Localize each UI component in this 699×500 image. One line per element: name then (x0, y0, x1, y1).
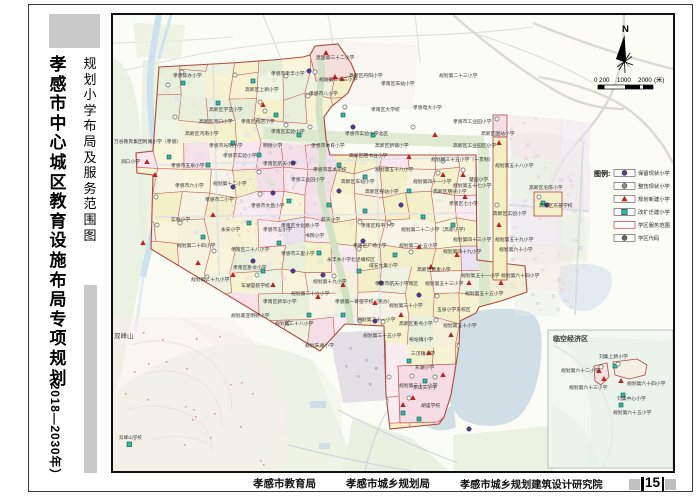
svg-text:孝南区卧龙小学: 孝南区卧龙小学 (233, 264, 267, 271)
svg-text:高新区重点小学: 高新区重点小学 (399, 320, 433, 327)
svg-text:孝感市玉泉小学: 孝感市玉泉小学 (171, 162, 205, 169)
svg-text:孝感市五小学: 孝感市五小学 (263, 226, 292, 233)
svg-text:规划第二十八小学: 规划第二十八小学 (275, 320, 314, 327)
svg-text:学区服务范围: 学区服务范围 (638, 221, 670, 229)
svg-text:孝南区和平小学: 孝南区和平小学 (361, 222, 395, 229)
svg-text:规划第二十三小学: 规划第二十三小学 (439, 72, 478, 79)
svg-text:高新区车站小学: 高新区车站小学 (341, 178, 375, 185)
svg-text:规划第二十二小学（高新小学）: 规划第二十二小学（高新小学） (401, 226, 468, 233)
svg-text:孝感市文昌小学: 孝感市文昌小学 (251, 202, 285, 209)
svg-text:孝感市实验小学北区: 孝感市实验小学北区 (345, 130, 388, 137)
svg-text:孝南区二十八小学: 孝南区二十八小学 (231, 246, 270, 253)
svg-text:规划第六十三小学: 规划第六十三小学 (569, 384, 608, 391)
svg-text:学区代码: 学区代码 (638, 234, 659, 242)
svg-text:咸安九集小学: 咸安九集小学 (369, 262, 398, 269)
svg-text:规划第五十七小学: 规划第五十七小学 (453, 182, 492, 189)
svg-text:规划第三十小学: 规划第三十小学 (389, 302, 423, 309)
svg-text:孝南区广场小学: 孝南区广场小学 (353, 242, 387, 249)
svg-text:高新区丹阳小学: 高新区丹阳小学 (349, 72, 383, 79)
svg-text:高新区上新小学: 高新区上新小学 (245, 86, 279, 93)
svg-text:孝感第一寄宿学校（民办）: 孝感第一寄宿学校（民办） (335, 298, 393, 305)
svg-text:图例:: 图例: (594, 169, 610, 178)
svg-text:明德小学: 明德小学 (263, 142, 282, 149)
svg-text:书院小学: 书院小学 (305, 232, 324, 239)
svg-text:孝南区航天小学: 孝南区航天小学 (263, 160, 297, 167)
svg-text:高新区朋兴小学: 高新区朋兴小学 (433, 188, 467, 195)
svg-text:孝南区车站小学: 孝南区车站小学 (381, 80, 415, 87)
svg-text:2000: 2000 (638, 77, 652, 84)
svg-text:规划第六十四小学: 规划第六十四小学 (501, 272, 540, 279)
svg-text:万谷教育集团附属小学（孝感）: 万谷教育集团附属小学（孝感） (114, 138, 181, 145)
svg-text:高新区河南小学: 高新区河南小学 (185, 130, 219, 137)
svg-text:实验小学: 实验小学 (171, 216, 190, 223)
svg-text:规划第二十六小学: 规划第二十六小学 (291, 290, 330, 297)
svg-text:规划第三十五小学: 规划第三十五小学 (363, 332, 402, 339)
svg-text:航天小学: 航天小学 (321, 216, 340, 223)
svg-text:孝南区杨店小学: 孝南区杨店小学 (241, 118, 275, 125)
svg-text:规划第五十一小学: 规划第五十一小学 (461, 272, 500, 279)
svg-text:规划第五十八小学: 规划第五十八小学 (375, 166, 414, 173)
svg-text:双峰山: 双峰山 (114, 331, 134, 340)
svg-text:高新区晒书台小学: 高新区晒书台小学 (349, 152, 388, 159)
svg-text:高新区实验小学: 高新区实验小学 (493, 210, 527, 217)
svg-text:孝感市二小学: 孝感市二小学 (205, 196, 234, 203)
svg-text:孝感市艺术学校: 孝感市艺术学校 (313, 166, 347, 173)
svg-text:三汊镇小学: 三汊镇小学 (411, 350, 435, 357)
svg-text:涧口小学: 涧口小学 (121, 158, 140, 165)
svg-text:规划新建小学: 规划新建小学 (638, 195, 670, 203)
svg-text:孝感市禾丰小学: 孝感市禾丰小学 (271, 70, 305, 77)
svg-text:规划第二十五小学: 规划第二十五小学 (399, 242, 438, 249)
svg-text:规划第三十五小学（一贯制）: 规划第三十五小学（一贯制） (431, 156, 493, 163)
svg-text:规划第五十九小学: 规划第五十九小学 (495, 236, 534, 243)
svg-text:孝感市六小学: 孝感市六小学 (175, 182, 204, 189)
svg-text:孝感市体育小学: 孝感市体育小学 (311, 142, 345, 149)
svg-text:永安小学: 永安小学 (221, 226, 240, 233)
svg-text:孝感市光明小学: 孝感市光明小学 (209, 142, 243, 149)
svg-text:整饬现状小学: 整饬现状小学 (638, 182, 670, 190)
svg-text:孝感市三里小学: 孝感市三里小学 (281, 250, 315, 257)
svg-text:保留现状小学: 保留现状小学 (638, 169, 670, 177)
svg-text:高新区黄麦小学: 高新区黄麦小学 (417, 266, 451, 273)
svg-text:楚园小学: 楚园小学 (469, 176, 488, 183)
svg-text:孝南区实验小学: 孝南区实验小学 (271, 128, 305, 135)
svg-text:1000: 1000 (617, 77, 631, 84)
svg-text:规划第二十一小学: 规划第二十一小学 (357, 316, 396, 323)
svg-text:孝感市航天小学南区: 孝感市航天小学南区 (375, 280, 418, 287)
svg-text:孝感市实验小学: 孝感市实验小学 (223, 152, 257, 159)
svg-text:高新区祝站小学: 高新区祝站小学 (365, 188, 399, 195)
svg-text:高新区工业园区小学: 高新区工业园区小学 (453, 142, 496, 149)
svg-text:双峰山学校: 双峰山学校 (119, 434, 142, 441)
svg-text:N: N (622, 24, 629, 35)
svg-text:临空经济区: 临空经济区 (553, 334, 588, 343)
svg-text:孝感市八小学: 孝感市八小学 (309, 90, 338, 97)
svg-text:建国第三十二小学: 建国第三十二小学 (316, 54, 355, 61)
svg-text:高新区国站小学: 高新区国站小学 (481, 130, 515, 137)
svg-text:规划第二十九小学: 规划第二十九小学 (191, 276, 230, 283)
svg-text:规划美亚明德小学: 规划美亚明德小学 (231, 312, 270, 319)
svg-text:高新区东部学校: 高新区东部学校 (539, 202, 573, 209)
svg-text:规划朱湖小学: 规划朱湖小学 (305, 342, 334, 349)
svg-text:规划第四十三小学: 规划第四十三小学 (453, 236, 492, 243)
svg-text:刘集中心小学: 刘集中心小学 (617, 395, 646, 402)
svg-text:高新区学堂小学: 高新区学堂小学 (209, 106, 243, 113)
svg-text:规划第十九小学: 规划第十九小学 (313, 278, 347, 285)
svg-text:祝站镇小学: 祝站镇小学 (409, 336, 433, 343)
svg-text:玉泉小学东校区: 玉泉小学东校区 (437, 306, 471, 313)
svg-text:规划第四十一小学: 规划第四十一小学 (413, 178, 452, 185)
svg-text:高新区新铺小学: 高新区新铺小学 (375, 142, 409, 149)
svg-text:孝感工业园小学: 孝感工业园小学 (291, 176, 325, 183)
svg-text:规划第五十八小学: 规划第五十八小学 (495, 162, 534, 169)
svg-text:规划第四十九小学: 规划第四十九小学 (443, 248, 482, 255)
svg-text:车湖晏砦学校: 车湖晏砦学校 (241, 282, 270, 289)
svg-text:刘集上新小学: 刘集上新小学 (599, 353, 628, 360)
svg-text:规划第五十三小学: 规划第五十三小学 (425, 280, 464, 287)
svg-text:(米): (米) (654, 76, 664, 84)
svg-text:孝感陈办小学: 孝感陈办小学 (173, 72, 202, 79)
svg-text:0 200: 0 200 (594, 77, 610, 84)
svg-text:胡庙学校: 胡庙学校 (421, 402, 440, 409)
svg-text:孝南区新华小学: 孝南区新华小学 (263, 298, 297, 305)
svg-text:孝南区大学校: 孝南区大学校 (371, 106, 400, 113)
svg-text:规划第十二小学: 规划第十二小学 (213, 180, 247, 187)
svg-text:改扩迁建小学: 改扩迁建小学 (638, 208, 670, 216)
svg-text:孝感市工业园小学: 孝感市工业园小学 (453, 118, 492, 125)
svg-text:东山头小学: 东山头小学 (413, 384, 437, 391)
svg-text:规划第五十小学: 规划第五十小学 (443, 322, 477, 329)
svg-text:高新区毛陈小学: 高新区毛陈小学 (529, 184, 563, 191)
svg-text:孝南区七小学: 孝南区七小学 (449, 200, 478, 207)
svg-text:规划第六十四小学: 规划第六十四小学 (627, 380, 666, 387)
svg-text:规划第二十四小学: 规划第二十四小学 (177, 242, 216, 249)
svg-text:高新区河口小学: 高新区河口小学 (199, 118, 233, 125)
svg-text:规划第六十五小学: 规划第六十五小学 (613, 409, 652, 416)
svg-text:规划第六十小学: 规划第六十小学 (499, 246, 533, 253)
svg-text:孝感电大小学: 孝感电大小学 (413, 104, 442, 111)
svg-text:规划第五十五小学: 规划第五十五小学 (465, 290, 504, 297)
svg-text:规划第六十二小学: 规划第六十二小学 (561, 367, 600, 374)
svg-text:永丰乡小学北泾嘴校区: 永丰乡小学北泾嘴校区 (327, 256, 375, 263)
svg-text:东湖小学: 东湖小学 (415, 364, 434, 371)
